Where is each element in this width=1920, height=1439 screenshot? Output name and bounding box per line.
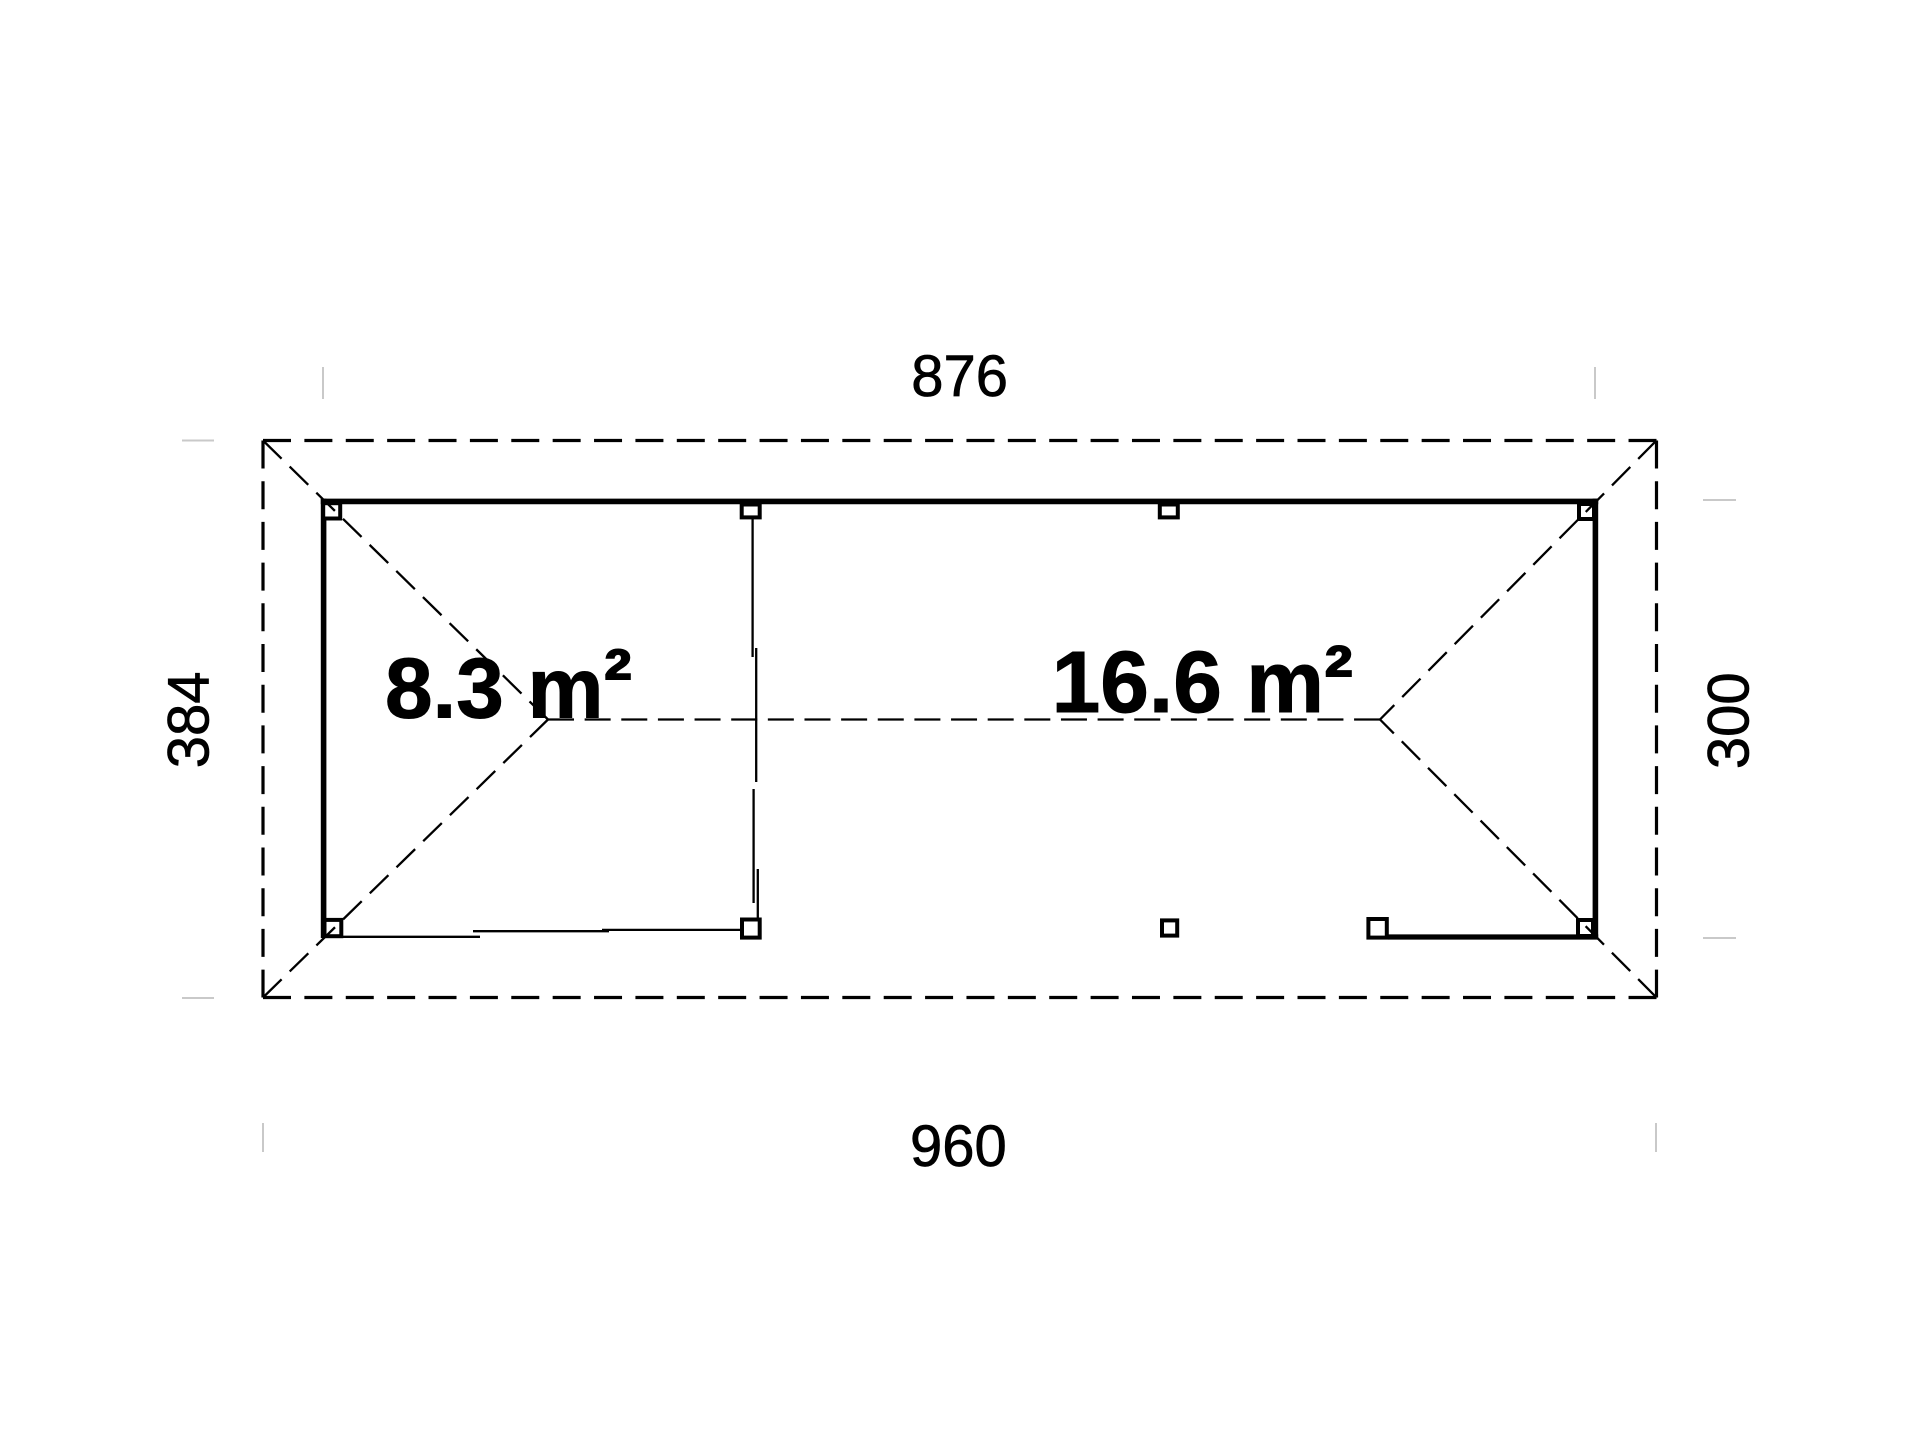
- svg-text:300: 300: [1697, 672, 1762, 769]
- svg-text:876: 876: [911, 344, 1008, 409]
- svg-text:384: 384: [157, 672, 222, 769]
- svg-text:16.6 m²: 16.6 m²: [1052, 627, 1354, 731]
- svg-text:8.3 m²: 8.3 m²: [385, 633, 632, 737]
- svg-text:960: 960: [910, 1114, 1007, 1179]
